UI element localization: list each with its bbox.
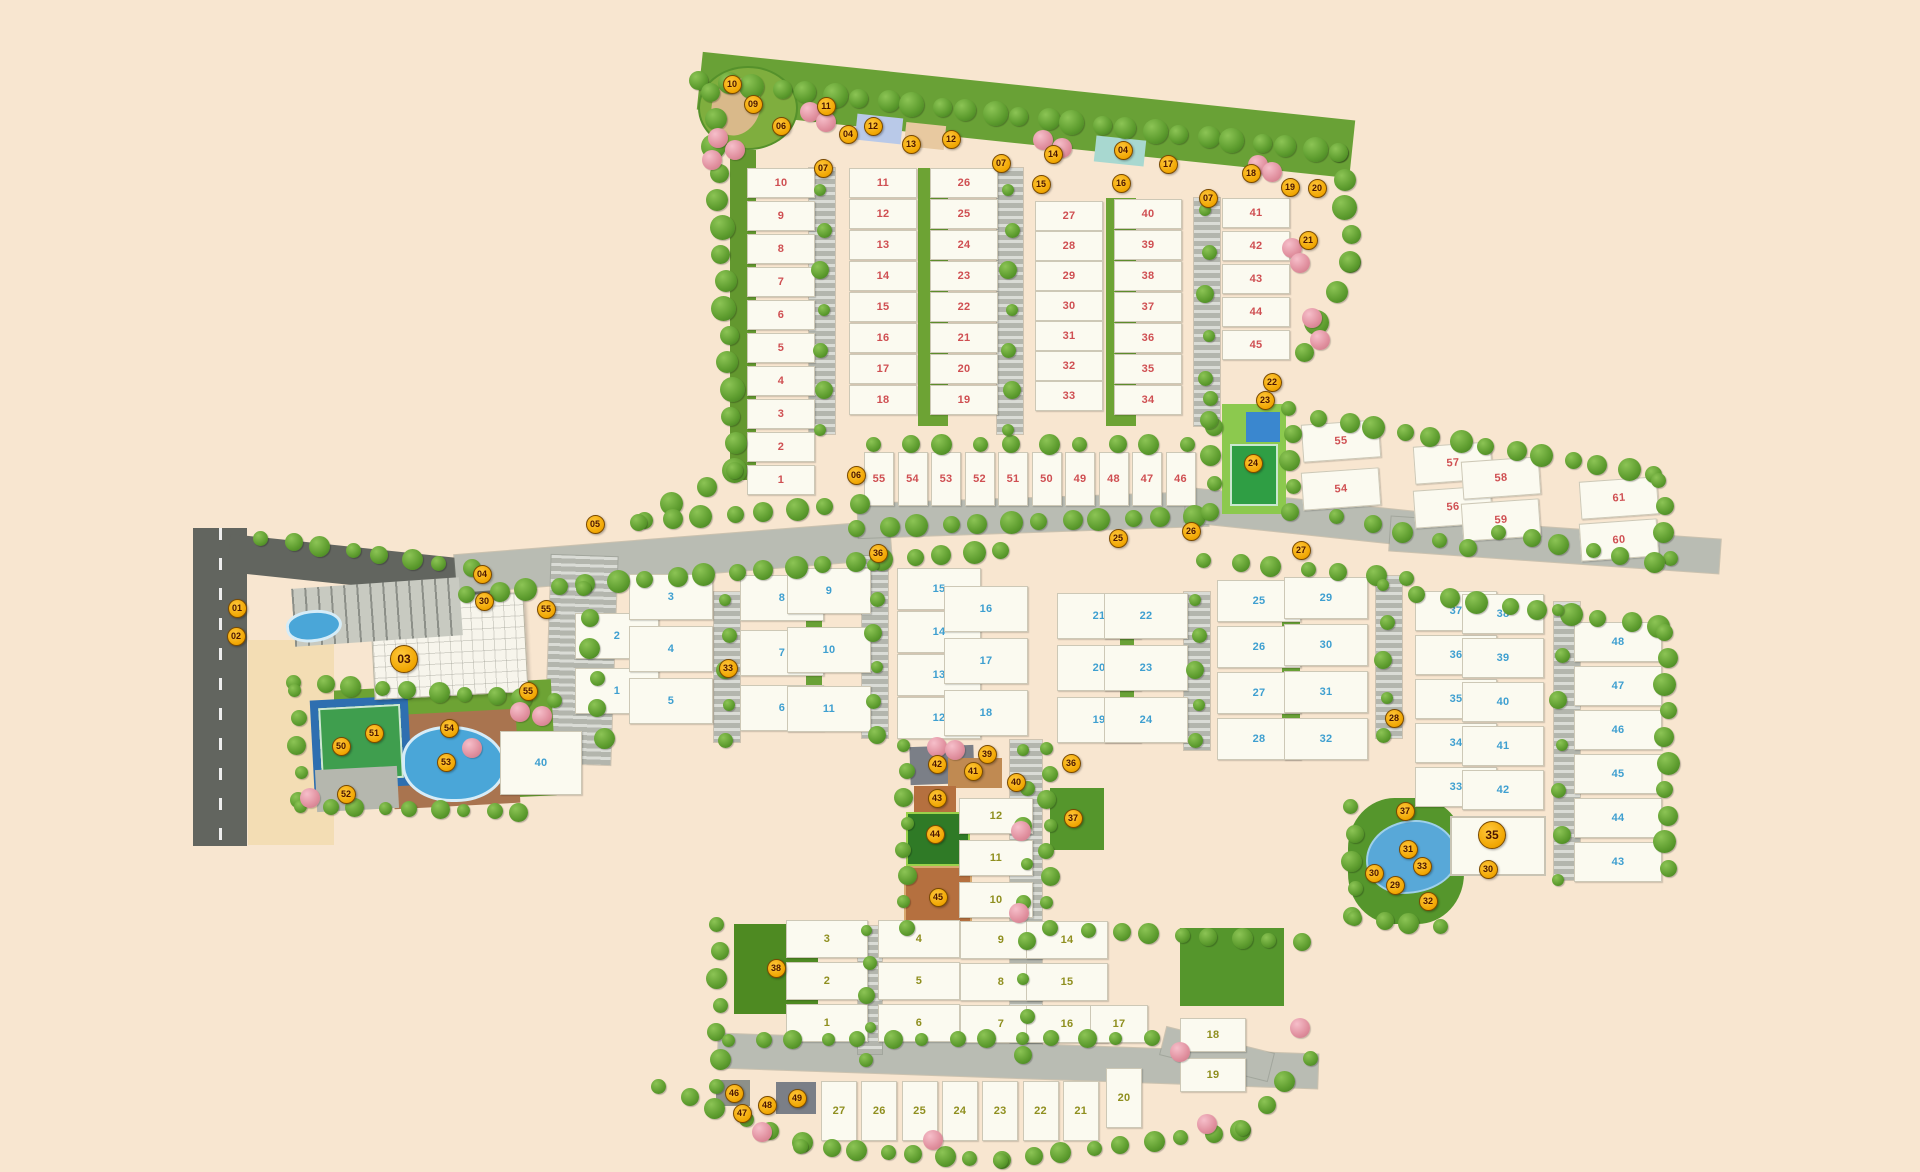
- tree-icon: [375, 681, 390, 696]
- amenity-marker-18[interactable]: 18: [1242, 164, 1261, 183]
- amenity-marker-30[interactable]: 30: [1365, 864, 1384, 883]
- plot-number: 53: [940, 473, 953, 485]
- tree-icon: [1340, 413, 1360, 433]
- plot-22[interactable]: 22: [930, 292, 998, 322]
- plot-number: 22: [958, 301, 971, 313]
- tree-icon: [1018, 932, 1036, 950]
- amenity-marker-21[interactable]: 21: [1299, 231, 1318, 250]
- plot-number: 34: [1450, 737, 1463, 749]
- plot-22[interactable]: 22: [1104, 593, 1188, 639]
- amenity-marker-35[interactable]: 35: [1478, 821, 1506, 849]
- plot-1[interactable]: 1: [747, 465, 815, 495]
- plot-number: 43: [1250, 273, 1263, 285]
- tree-icon: [729, 564, 746, 581]
- tree-icon: [1041, 867, 1060, 886]
- amenity-marker-04[interactable]: 04: [1114, 141, 1133, 160]
- plot-16[interactable]: 16: [944, 586, 1028, 632]
- plot-13[interactable]: 13: [849, 230, 917, 260]
- plot-41[interactable]: 41: [1222, 198, 1290, 228]
- plot-number: 10: [775, 177, 788, 189]
- plot-number: 47: [1612, 680, 1625, 692]
- plot-45[interactable]: 45: [1574, 754, 1662, 794]
- tree-icon: [285, 533, 303, 551]
- marker-label: 15: [1036, 179, 1046, 189]
- marker-label: 42: [932, 759, 942, 769]
- amenity-marker-45[interactable]: 45: [929, 888, 948, 907]
- tree-icon: [963, 541, 986, 564]
- plot-20[interactable]: 20: [1106, 1068, 1142, 1128]
- plot-28[interactable]: 28: [1035, 231, 1103, 261]
- plot-31[interactable]: 31: [1035, 321, 1103, 351]
- plot-11[interactable]: 11: [849, 168, 917, 198]
- amenity-marker-36[interactable]: 36: [869, 544, 888, 563]
- plot-2[interactable]: 2: [786, 962, 868, 1000]
- plot-23[interactable]: 23: [1104, 645, 1188, 691]
- plot-number: 41: [1250, 207, 1263, 219]
- plot-54[interactable]: 54: [898, 452, 928, 506]
- plot-17[interactable]: 17: [944, 638, 1028, 684]
- tree-icon: [1341, 851, 1362, 872]
- plot-23[interactable]: 23: [930, 261, 998, 291]
- plot-number: 54: [1334, 483, 1348, 496]
- plot-24[interactable]: 24: [942, 1081, 978, 1141]
- plot-52[interactable]: 52: [965, 452, 995, 506]
- tree-icon: [1346, 825, 1364, 843]
- plot-40[interactable]: 40: [1114, 199, 1182, 229]
- plot-number: 7: [998, 1018, 1004, 1030]
- tree-icon: [346, 543, 361, 558]
- plot-39[interactable]: 39: [1462, 638, 1544, 678]
- plot-number: 1: [824, 1017, 830, 1029]
- plot-54[interactable]: 54: [1301, 467, 1381, 510]
- plot-5[interactable]: 5: [629, 678, 713, 724]
- flowering-tree-icon: [725, 140, 745, 160]
- tree-icon: [1219, 128, 1244, 153]
- plot-number: 25: [1253, 595, 1266, 607]
- tree-icon: [1341, 253, 1360, 272]
- plot-number: 26: [873, 1105, 886, 1117]
- tree-icon: [753, 560, 773, 580]
- amenity-marker-50[interactable]: 50: [332, 737, 351, 756]
- plot-20[interactable]: 20: [930, 354, 998, 384]
- tree-icon: [894, 788, 913, 807]
- amenity-marker-37[interactable]: 37: [1396, 802, 1415, 821]
- plot-43[interactable]: 43: [1222, 264, 1290, 294]
- tree-icon: [1202, 245, 1217, 260]
- amenity-marker-15[interactable]: 15: [1032, 175, 1051, 194]
- flowering-tree-icon: [1262, 162, 1282, 182]
- plot-34[interactable]: 34: [1114, 385, 1182, 415]
- plot-30[interactable]: 30: [1284, 624, 1368, 666]
- plot-58[interactable]: 58: [1461, 456, 1541, 499]
- plot-number: 60: [1612, 534, 1626, 547]
- amenity-marker-19[interactable]: 19: [1281, 178, 1300, 197]
- amenity-marker-04[interactable]: 04: [839, 125, 858, 144]
- amenity-marker-30[interactable]: 30: [475, 592, 494, 611]
- amenity-marker-17[interactable]: 17: [1159, 155, 1178, 174]
- tree-icon: [814, 424, 826, 436]
- amenity-marker-09[interactable]: 09: [744, 95, 763, 114]
- plot-26[interactable]: 26: [861, 1081, 897, 1141]
- plot-9[interactable]: 9: [747, 201, 815, 231]
- plot-number: 32: [1320, 733, 1333, 745]
- tree-icon: [954, 99, 976, 121]
- tree-icon: [458, 586, 475, 603]
- tree-icon: [1109, 1032, 1122, 1045]
- plot-47[interactable]: 47: [1132, 452, 1162, 506]
- plot-number: 28: [1253, 733, 1266, 745]
- marker-label: 01: [232, 603, 242, 613]
- plot-21[interactable]: 21: [930, 323, 998, 353]
- marker-label: 27: [1296, 545, 1306, 555]
- amenity-marker-40[interactable]: 40: [1007, 773, 1026, 792]
- marker-label: 43: [932, 793, 942, 803]
- plot-number: 58: [1494, 472, 1508, 485]
- marker-label: 12: [868, 121, 878, 131]
- tree-icon: [1001, 343, 1016, 358]
- plot-number: 34: [1142, 394, 1155, 406]
- plot-11[interactable]: 11: [959, 840, 1033, 876]
- tree-icon: [846, 552, 866, 572]
- plot-30[interactable]: 30: [1035, 291, 1103, 321]
- plot-14[interactable]: 14: [849, 261, 917, 291]
- marker-label: 06: [776, 121, 786, 131]
- amenity-marker-54[interactable]: 54: [440, 719, 459, 738]
- tree-icon: [1329, 509, 1344, 524]
- plot-25[interactable]: 25: [930, 199, 998, 229]
- tree-icon: [1477, 438, 1494, 455]
- plot-31[interactable]: 31: [1284, 671, 1368, 713]
- plot-46[interactable]: 46: [1166, 452, 1196, 506]
- marker-label: 37: [1068, 813, 1078, 823]
- tree-icon: [931, 545, 951, 565]
- plot-number: 46: [1612, 724, 1625, 736]
- tree-icon: [814, 184, 826, 196]
- tree-icon: [1408, 586, 1425, 603]
- plot-39[interactable]: 39: [1114, 230, 1182, 260]
- amenity-marker-33[interactable]: 33: [1413, 857, 1432, 876]
- amenity-marker-07[interactable]: 07: [992, 154, 1011, 173]
- tree-icon: [1374, 651, 1392, 669]
- tree-icon: [1253, 134, 1272, 153]
- amenity-marker-22[interactable]: 22: [1263, 373, 1282, 392]
- plot-21[interactable]: 21: [1063, 1081, 1099, 1141]
- plot-number: 21: [958, 332, 971, 344]
- flowering-tree-icon: [1290, 253, 1310, 273]
- plot-5[interactable]: 5: [747, 333, 815, 363]
- amenity-marker-52[interactable]: 52: [337, 785, 356, 804]
- plot-42[interactable]: 42: [1222, 231, 1290, 261]
- plot-4[interactable]: 4: [629, 626, 713, 672]
- tree-icon: [868, 726, 886, 744]
- amenity-marker-05[interactable]: 05: [586, 515, 605, 534]
- amenity-marker-03[interactable]: 03: [390, 645, 418, 673]
- amenity-marker-39[interactable]: 39: [978, 745, 997, 764]
- marker-label: 21: [1303, 235, 1313, 245]
- tree-icon: [1653, 830, 1676, 853]
- tree-icon: [681, 1088, 699, 1106]
- tree-icon: [689, 505, 712, 528]
- amenity-marker-32[interactable]: 32: [1419, 892, 1438, 911]
- amenity-marker-24[interactable]: 24: [1244, 454, 1263, 473]
- plot-19[interactable]: 19: [930, 385, 998, 415]
- amenity-marker-12[interactable]: 12: [864, 117, 883, 136]
- flowering-tree-icon: [752, 1122, 772, 1142]
- plot-number: 29: [1063, 270, 1076, 282]
- flowering-tree-icon: [300, 788, 320, 808]
- tree-icon: [457, 687, 472, 702]
- plot-number: 10: [990, 894, 1003, 906]
- plot-26[interactable]: 26: [930, 168, 998, 198]
- plot-44[interactable]: 44: [1574, 798, 1662, 838]
- plot-number: 17: [1113, 1018, 1126, 1030]
- plot-29[interactable]: 29: [1284, 577, 1368, 619]
- amenity-marker-46[interactable]: 46: [725, 1084, 744, 1103]
- tree-icon: [547, 693, 562, 708]
- plot-53[interactable]: 53: [931, 452, 961, 506]
- plot-number: 39: [1497, 652, 1510, 664]
- amenity-marker-43[interactable]: 43: [928, 789, 947, 808]
- plot-18[interactable]: 18: [944, 690, 1028, 736]
- tree-icon: [288, 684, 301, 697]
- tree-icon: [849, 89, 868, 108]
- plot-2[interactable]: 2: [747, 432, 815, 462]
- tree-icon: [1653, 673, 1676, 696]
- plot-number: 61: [1612, 492, 1626, 505]
- tree-icon: [1556, 739, 1568, 751]
- plot-33[interactable]: 33: [1035, 381, 1103, 411]
- amenity-marker-44[interactable]: 44: [926, 825, 945, 844]
- flowering-tree-icon: [1009, 903, 1029, 923]
- plot-43[interactable]: 43: [1574, 842, 1662, 882]
- plot-18[interactable]: 18: [849, 385, 917, 415]
- tree-icon: [1111, 1136, 1129, 1154]
- plot-3[interactable]: 3: [747, 399, 815, 429]
- tree-icon: [1006, 304, 1018, 316]
- plot-11[interactable]: 11: [787, 686, 871, 732]
- plot-44[interactable]: 44: [1222, 297, 1290, 327]
- tree-icon: [1188, 733, 1203, 748]
- tree-icon: [1398, 913, 1419, 934]
- marker-label: 11: [821, 101, 831, 111]
- plot-number: 21: [1074, 1105, 1087, 1117]
- plot-22[interactable]: 22: [1023, 1081, 1059, 1141]
- plot-8[interactable]: 8: [747, 234, 815, 264]
- amenity-marker-16[interactable]: 16: [1112, 174, 1131, 193]
- amenity-marker-36[interactable]: 36: [1062, 754, 1081, 773]
- plot-6[interactable]: 6: [747, 300, 815, 330]
- amenity-marker-53[interactable]: 53: [437, 753, 456, 772]
- plot-number: 5: [916, 975, 922, 987]
- plot-number: 18: [980, 707, 993, 719]
- tree-icon: [1189, 594, 1201, 606]
- marker-label: 39: [982, 749, 992, 759]
- plot-42[interactable]: 42: [1462, 770, 1544, 810]
- tree-icon: [814, 556, 831, 573]
- tree-icon: [1549, 691, 1567, 709]
- plot-47[interactable]: 47: [1574, 666, 1662, 706]
- amenity-marker-33[interactable]: 33: [719, 659, 738, 678]
- amenity-marker-30[interactable]: 30: [1479, 860, 1498, 879]
- plot-51[interactable]: 51: [998, 452, 1028, 506]
- plot-7[interactable]: 7: [747, 267, 815, 297]
- plot-27[interactable]: 27: [1035, 201, 1103, 231]
- tree-icon: [636, 571, 653, 588]
- plot-3[interactable]: 3: [786, 920, 868, 958]
- plot-number: 8: [778, 243, 784, 255]
- tree-icon: [823, 1139, 841, 1157]
- plot-32[interactable]: 32: [1035, 351, 1103, 381]
- tree-icon: [697, 477, 717, 497]
- plot-29[interactable]: 29: [1035, 261, 1103, 291]
- tree-icon: [1274, 1071, 1295, 1092]
- plot-23[interactable]: 23: [982, 1081, 1018, 1141]
- amenity-marker-20[interactable]: 20: [1308, 179, 1327, 198]
- tree-icon: [1334, 169, 1356, 191]
- plot-36[interactable]: 36: [1114, 323, 1182, 353]
- amenity-marker-55[interactable]: 55: [519, 682, 538, 701]
- tree-icon: [1180, 437, 1195, 452]
- plot-10[interactable]: 10: [787, 627, 871, 673]
- plot-number: 14: [877, 270, 890, 282]
- amenity-marker-12[interactable]: 12: [942, 130, 961, 149]
- plot-14[interactable]: 14: [1026, 921, 1108, 959]
- marker-label: 06: [851, 470, 861, 480]
- marker-label: 09: [748, 99, 758, 109]
- plot-24[interactable]: 24: [1104, 697, 1188, 743]
- plot-number: 19: [1207, 1069, 1220, 1081]
- amenity-marker-13[interactable]: 13: [902, 135, 921, 154]
- tree-icon: [943, 516, 960, 533]
- amenity-marker-06[interactable]: 06: [847, 466, 866, 485]
- plot-4[interactable]: 4: [747, 366, 815, 396]
- plot-4[interactable]: 4: [878, 920, 960, 958]
- plot-38[interactable]: 38: [1114, 261, 1182, 291]
- marker-label: 31: [1403, 844, 1413, 854]
- tree-icon: [1017, 744, 1029, 756]
- plot-46[interactable]: 46: [1574, 710, 1662, 750]
- amenity-marker-29[interactable]: 29: [1386, 876, 1405, 895]
- marker-label: 14: [1048, 149, 1058, 159]
- plot-41[interactable]: 41: [1462, 726, 1544, 766]
- tree-icon: [1465, 591, 1488, 614]
- plot-24[interactable]: 24: [930, 230, 998, 260]
- marker-label: 13: [906, 139, 916, 149]
- tree-icon: [1527, 600, 1547, 620]
- tennis-north-pool: [1246, 412, 1280, 442]
- amenity-marker-31[interactable]: 31: [1399, 840, 1418, 859]
- tree-icon: [1656, 497, 1674, 515]
- plot-19[interactable]: 19: [1180, 1058, 1246, 1092]
- amenity-marker-25[interactable]: 25: [1109, 529, 1128, 548]
- amenity-marker-51[interactable]: 51: [365, 724, 384, 743]
- tree-icon: [719, 594, 731, 606]
- amenity-marker-07[interactable]: 07: [814, 159, 833, 178]
- amenity-marker-14[interactable]: 14: [1044, 145, 1063, 164]
- plot-50[interactable]: 50: [1032, 452, 1062, 506]
- plot-35[interactable]: 35: [1114, 354, 1182, 384]
- tree-icon: [726, 462, 743, 479]
- entry-road: [193, 528, 247, 846]
- tree-icon: [884, 1030, 903, 1049]
- amenity-marker-49[interactable]: 49: [788, 1089, 807, 1108]
- plot-32[interactable]: 32: [1284, 718, 1368, 760]
- tree-icon: [1093, 116, 1112, 135]
- marker-label: 49: [792, 1093, 802, 1103]
- plot-number: 16: [980, 603, 993, 615]
- amenity-marker-10[interactable]: 10: [723, 75, 742, 94]
- plot-61[interactable]: 61: [1579, 476, 1659, 519]
- amenity-marker-41[interactable]: 41: [964, 762, 983, 781]
- amenity-marker-48[interactable]: 48: [758, 1096, 777, 1115]
- tree-icon: [1656, 624, 1673, 641]
- tree-icon: [1332, 195, 1357, 220]
- plot-40[interactable]: 40: [1462, 682, 1544, 722]
- plot-number: 15: [877, 301, 890, 313]
- plot-15[interactable]: 15: [1026, 963, 1108, 1001]
- amenity-marker-47[interactable]: 47: [733, 1104, 752, 1123]
- plot-17[interactable]: 17: [849, 354, 917, 384]
- tree-icon: [1433, 919, 1448, 934]
- tree-icon: [402, 549, 423, 570]
- tree-icon: [1009, 107, 1028, 126]
- tree-icon: [1050, 1142, 1071, 1163]
- tree-icon: [1232, 554, 1250, 572]
- amenity-marker-06[interactable]: 06: [772, 117, 791, 136]
- amenity-marker-01[interactable]: 01: [228, 599, 247, 618]
- plot-45[interactable]: 45: [1222, 330, 1290, 360]
- plot-49[interactable]: 49: [1065, 452, 1095, 506]
- amenity-marker-42[interactable]: 42: [928, 755, 947, 774]
- tree-icon: [1003, 381, 1021, 399]
- flowering-tree-icon: [702, 150, 722, 170]
- plot-number: 13: [877, 239, 890, 251]
- amenity-marker-23[interactable]: 23: [1256, 391, 1275, 410]
- amenity-marker-26[interactable]: 26: [1182, 522, 1201, 541]
- amenity-marker-38[interactable]: 38: [767, 959, 786, 978]
- plot-40[interactable]: 40: [500, 731, 582, 795]
- plot-15[interactable]: 15: [849, 292, 917, 322]
- tree-icon: [1459, 539, 1477, 557]
- tree-icon: [1657, 752, 1680, 775]
- amenity-marker-02[interactable]: 02: [227, 627, 246, 646]
- amenity-marker-04[interactable]: 04: [473, 565, 492, 584]
- amenity-marker-11[interactable]: 11: [817, 97, 836, 116]
- tree-icon: [579, 638, 600, 659]
- plot-10[interactable]: 10: [747, 168, 815, 198]
- plot-number: 29: [1320, 592, 1333, 604]
- amenity-marker-55[interactable]: 55: [537, 600, 556, 619]
- flowering-tree-icon: [1170, 1042, 1190, 1062]
- plot-number: 31: [1320, 686, 1333, 698]
- amenity-marker-27[interactable]: 27: [1292, 541, 1311, 560]
- plot-18[interactable]: 18: [1180, 1018, 1246, 1052]
- amenity-marker-28[interactable]: 28: [1385, 709, 1404, 728]
- plot-16[interactable]: 16: [849, 323, 917, 353]
- plot-number: 41: [1497, 740, 1510, 752]
- amenity-marker-07[interactable]: 07: [1199, 189, 1218, 208]
- amenity-marker-37[interactable]: 37: [1064, 809, 1083, 828]
- plot-12[interactable]: 12: [849, 199, 917, 229]
- plot-37[interactable]: 37: [1114, 292, 1182, 322]
- plot-48[interactable]: 48: [1099, 452, 1129, 506]
- plot-27[interactable]: 27: [821, 1081, 857, 1141]
- tree-icon: [576, 581, 591, 596]
- plot-5[interactable]: 5: [878, 962, 960, 1000]
- marker-label: 54: [444, 723, 454, 733]
- tree-icon: [1663, 551, 1678, 566]
- tree-icon: [1548, 534, 1569, 555]
